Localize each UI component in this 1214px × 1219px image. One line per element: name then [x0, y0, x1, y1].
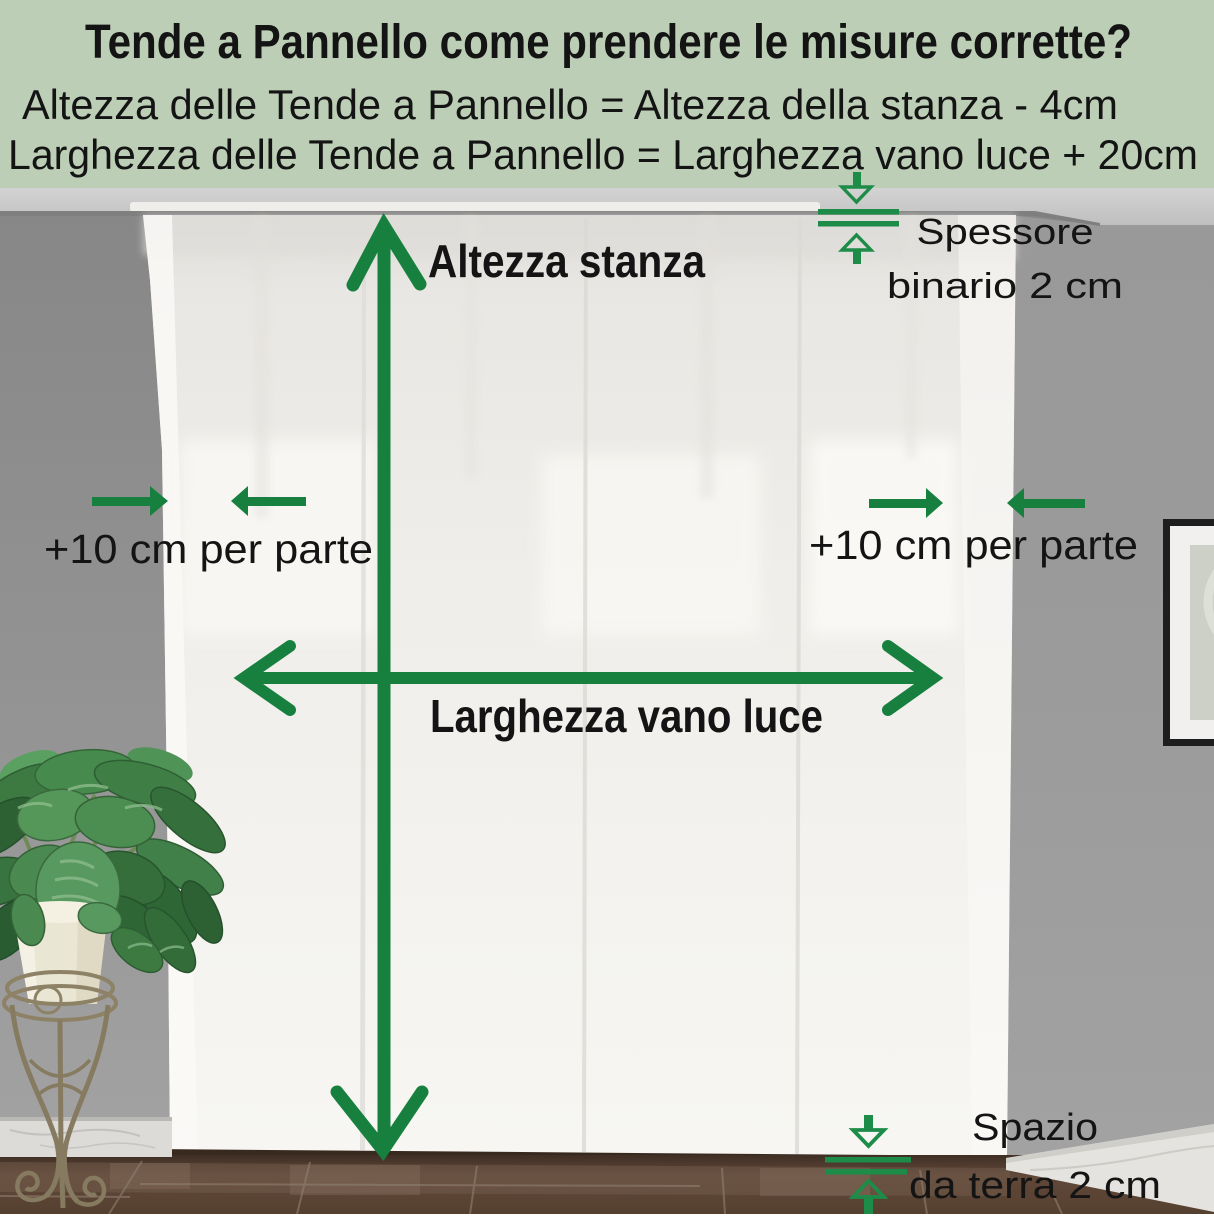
svg-text:Tende a Pannello come prendere: Tende a Pannello come prendere le misure… [85, 16, 1132, 69]
svg-text:+10 cm per parte: +10 cm per parte [44, 526, 373, 572]
svg-text:Larghezza vano luce: Larghezza vano luce [430, 690, 823, 742]
svg-text:binario 2 cm: binario 2 cm [887, 265, 1123, 306]
svg-text:Spazio: Spazio [972, 1107, 1098, 1149]
svg-text:Larghezza delle Tende a Pannel: Larghezza delle Tende a Pannello = Largh… [8, 131, 1198, 178]
svg-text:Altezza stanza: Altezza stanza [428, 235, 705, 287]
svg-text:Altezza delle Tende a Pannello: Altezza delle Tende a Pannello = Altezza… [22, 81, 1118, 128]
svg-text:da terra 2 cm: da terra 2 cm [909, 1165, 1161, 1207]
svg-text:+10 cm per parte: +10 cm per parte [809, 522, 1138, 568]
svg-text:Spessore: Spessore [917, 211, 1094, 252]
